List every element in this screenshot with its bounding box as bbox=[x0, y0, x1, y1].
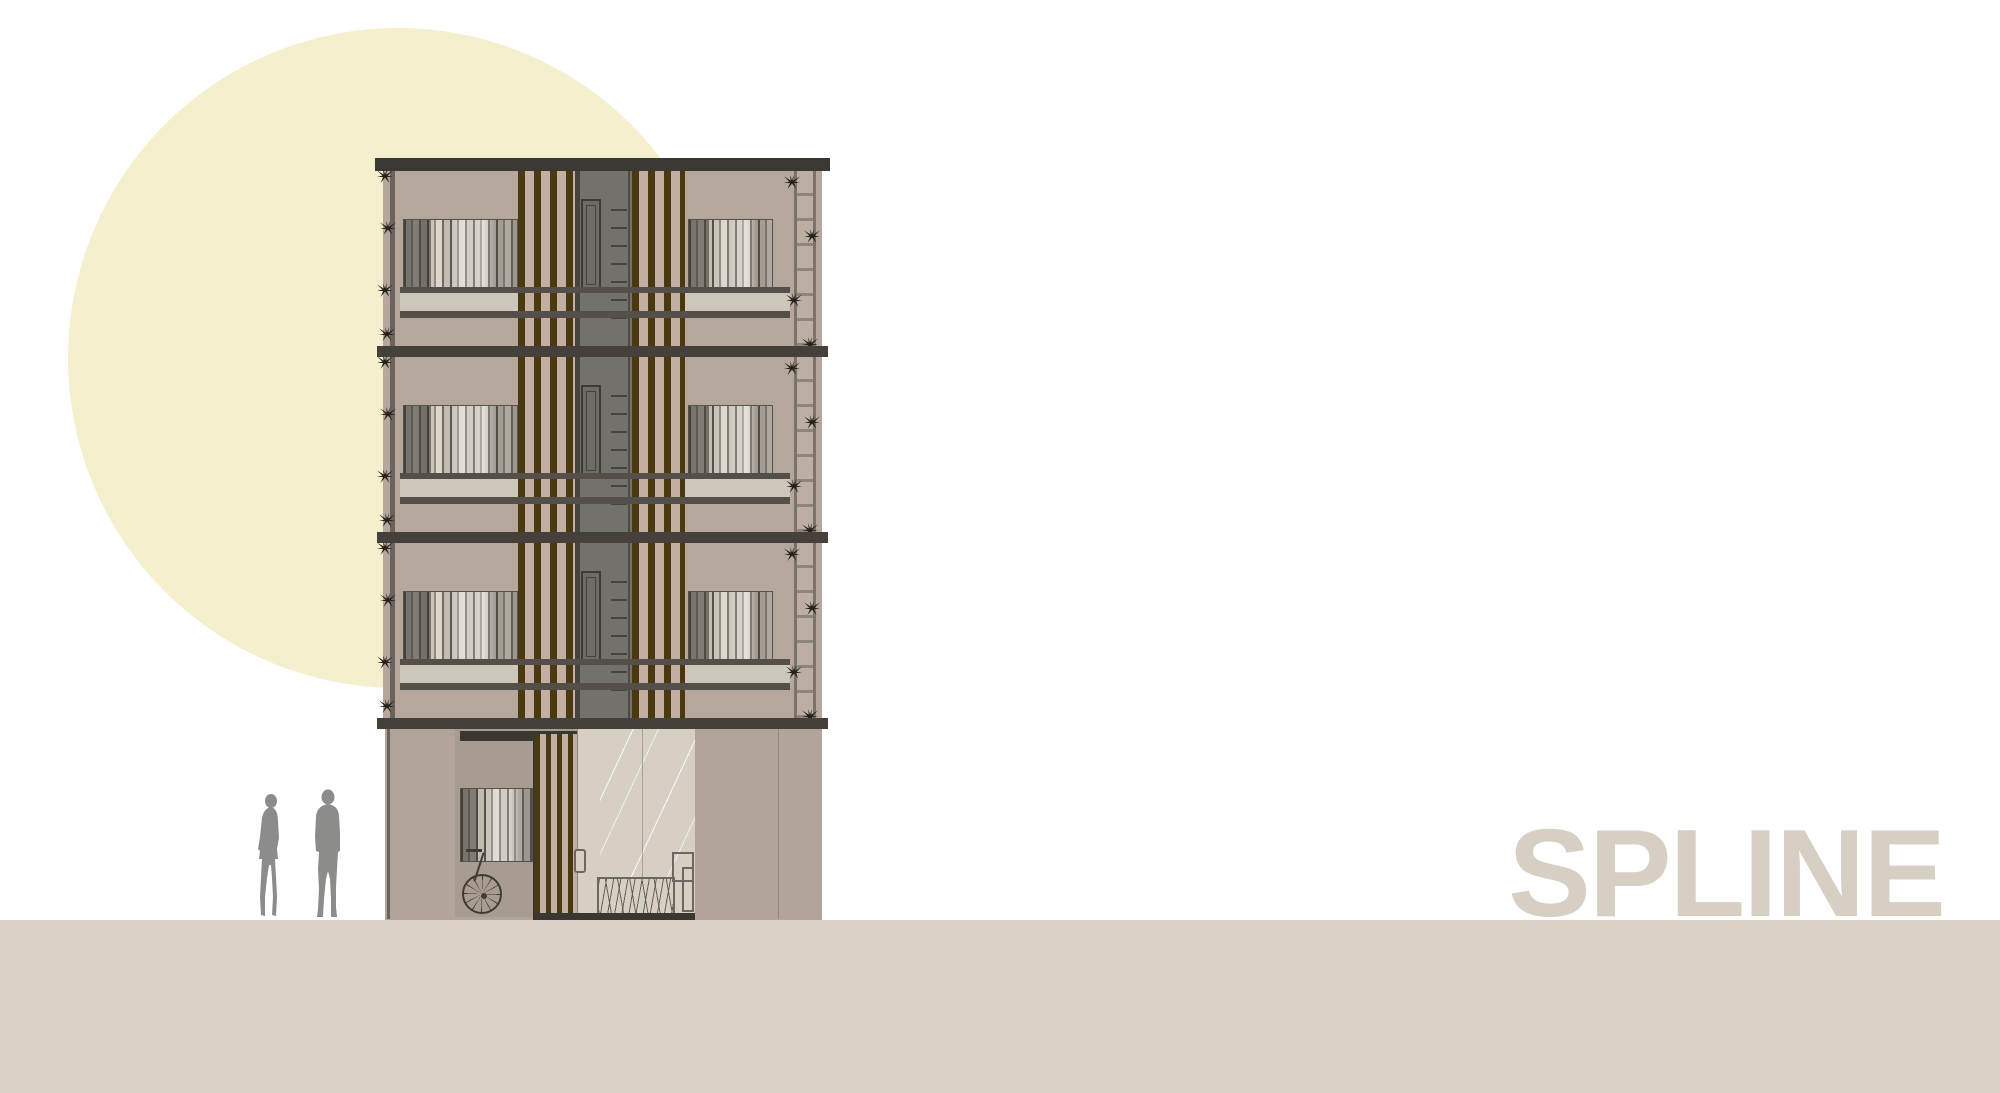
ground-floor bbox=[385, 729, 822, 922]
stair-shaft bbox=[575, 171, 632, 357]
window-blinds-left bbox=[403, 405, 518, 477]
window-blinds-left bbox=[403, 219, 518, 291]
timber-slat-screen bbox=[518, 357, 575, 543]
bicycle-wheel bbox=[462, 874, 502, 914]
building-elevation bbox=[383, 158, 822, 922]
balcony-railing-top bbox=[383, 659, 822, 665]
stair-outline bbox=[611, 193, 627, 325]
plant-icon bbox=[380, 407, 396, 421]
wall-seam bbox=[778, 729, 779, 919]
green-wall-column-right bbox=[790, 357, 822, 543]
stair-outline bbox=[611, 379, 627, 511]
building-floor bbox=[383, 171, 822, 357]
wall-edge-line bbox=[387, 729, 390, 919]
stair-shaft bbox=[575, 357, 632, 543]
balcony-railing-bottom bbox=[383, 683, 822, 690]
ground-band bbox=[0, 920, 2000, 1093]
balcony-railing-top bbox=[383, 473, 822, 479]
green-wall-column-right bbox=[790, 171, 822, 357]
floor-slab bbox=[377, 346, 828, 357]
threshold-strip bbox=[533, 913, 695, 920]
shaft-door bbox=[581, 385, 601, 477]
plant-icon bbox=[380, 593, 396, 607]
stair-shaft bbox=[575, 543, 632, 729]
planter-boxes bbox=[794, 171, 816, 357]
green-wall-column-left bbox=[383, 543, 400, 729]
green-wall-column-left bbox=[383, 357, 400, 543]
roof-slab bbox=[375, 158, 830, 171]
timber-slat-screen bbox=[518, 171, 575, 357]
door-handle bbox=[574, 849, 586, 873]
building-floor bbox=[383, 543, 822, 729]
timber-slat-gate bbox=[533, 734, 577, 917]
bicycle-handlebar bbox=[466, 849, 482, 852]
floor-slab bbox=[377, 532, 828, 543]
planter-boxes bbox=[794, 357, 816, 543]
timber-slat-screen bbox=[632, 357, 685, 543]
hatched-fence bbox=[597, 877, 675, 917]
window-blinds-right bbox=[688, 219, 773, 291]
balcony-railing-top bbox=[383, 287, 822, 293]
brand-wordmark: SPLINE bbox=[1508, 812, 1944, 936]
bicycle-icon bbox=[456, 844, 506, 921]
window-blinds-left bbox=[403, 591, 518, 663]
timber-slat-screen bbox=[518, 543, 575, 729]
window-blinds-right bbox=[688, 591, 773, 663]
window-blinds-right bbox=[688, 405, 773, 477]
planter-boxes bbox=[794, 543, 816, 729]
plant-icon bbox=[380, 221, 396, 235]
stair-outline bbox=[611, 565, 627, 697]
shaft-door bbox=[581, 571, 601, 663]
balcony-railing-bottom bbox=[383, 497, 822, 504]
timber-slat-screen bbox=[632, 543, 685, 729]
plant-icon bbox=[379, 699, 395, 713]
floor-slab bbox=[377, 718, 828, 729]
shaft-door bbox=[581, 199, 601, 291]
green-wall-column-right bbox=[790, 543, 822, 729]
woman-silhouette bbox=[252, 793, 288, 921]
green-wall-column-left bbox=[383, 171, 400, 357]
balcony-railing-bottom bbox=[383, 311, 822, 318]
man-silhouette bbox=[304, 789, 350, 921]
floors bbox=[383, 171, 822, 729]
utility-box bbox=[682, 867, 694, 912]
timber-slat-screen bbox=[632, 171, 685, 357]
building-floor bbox=[383, 357, 822, 543]
